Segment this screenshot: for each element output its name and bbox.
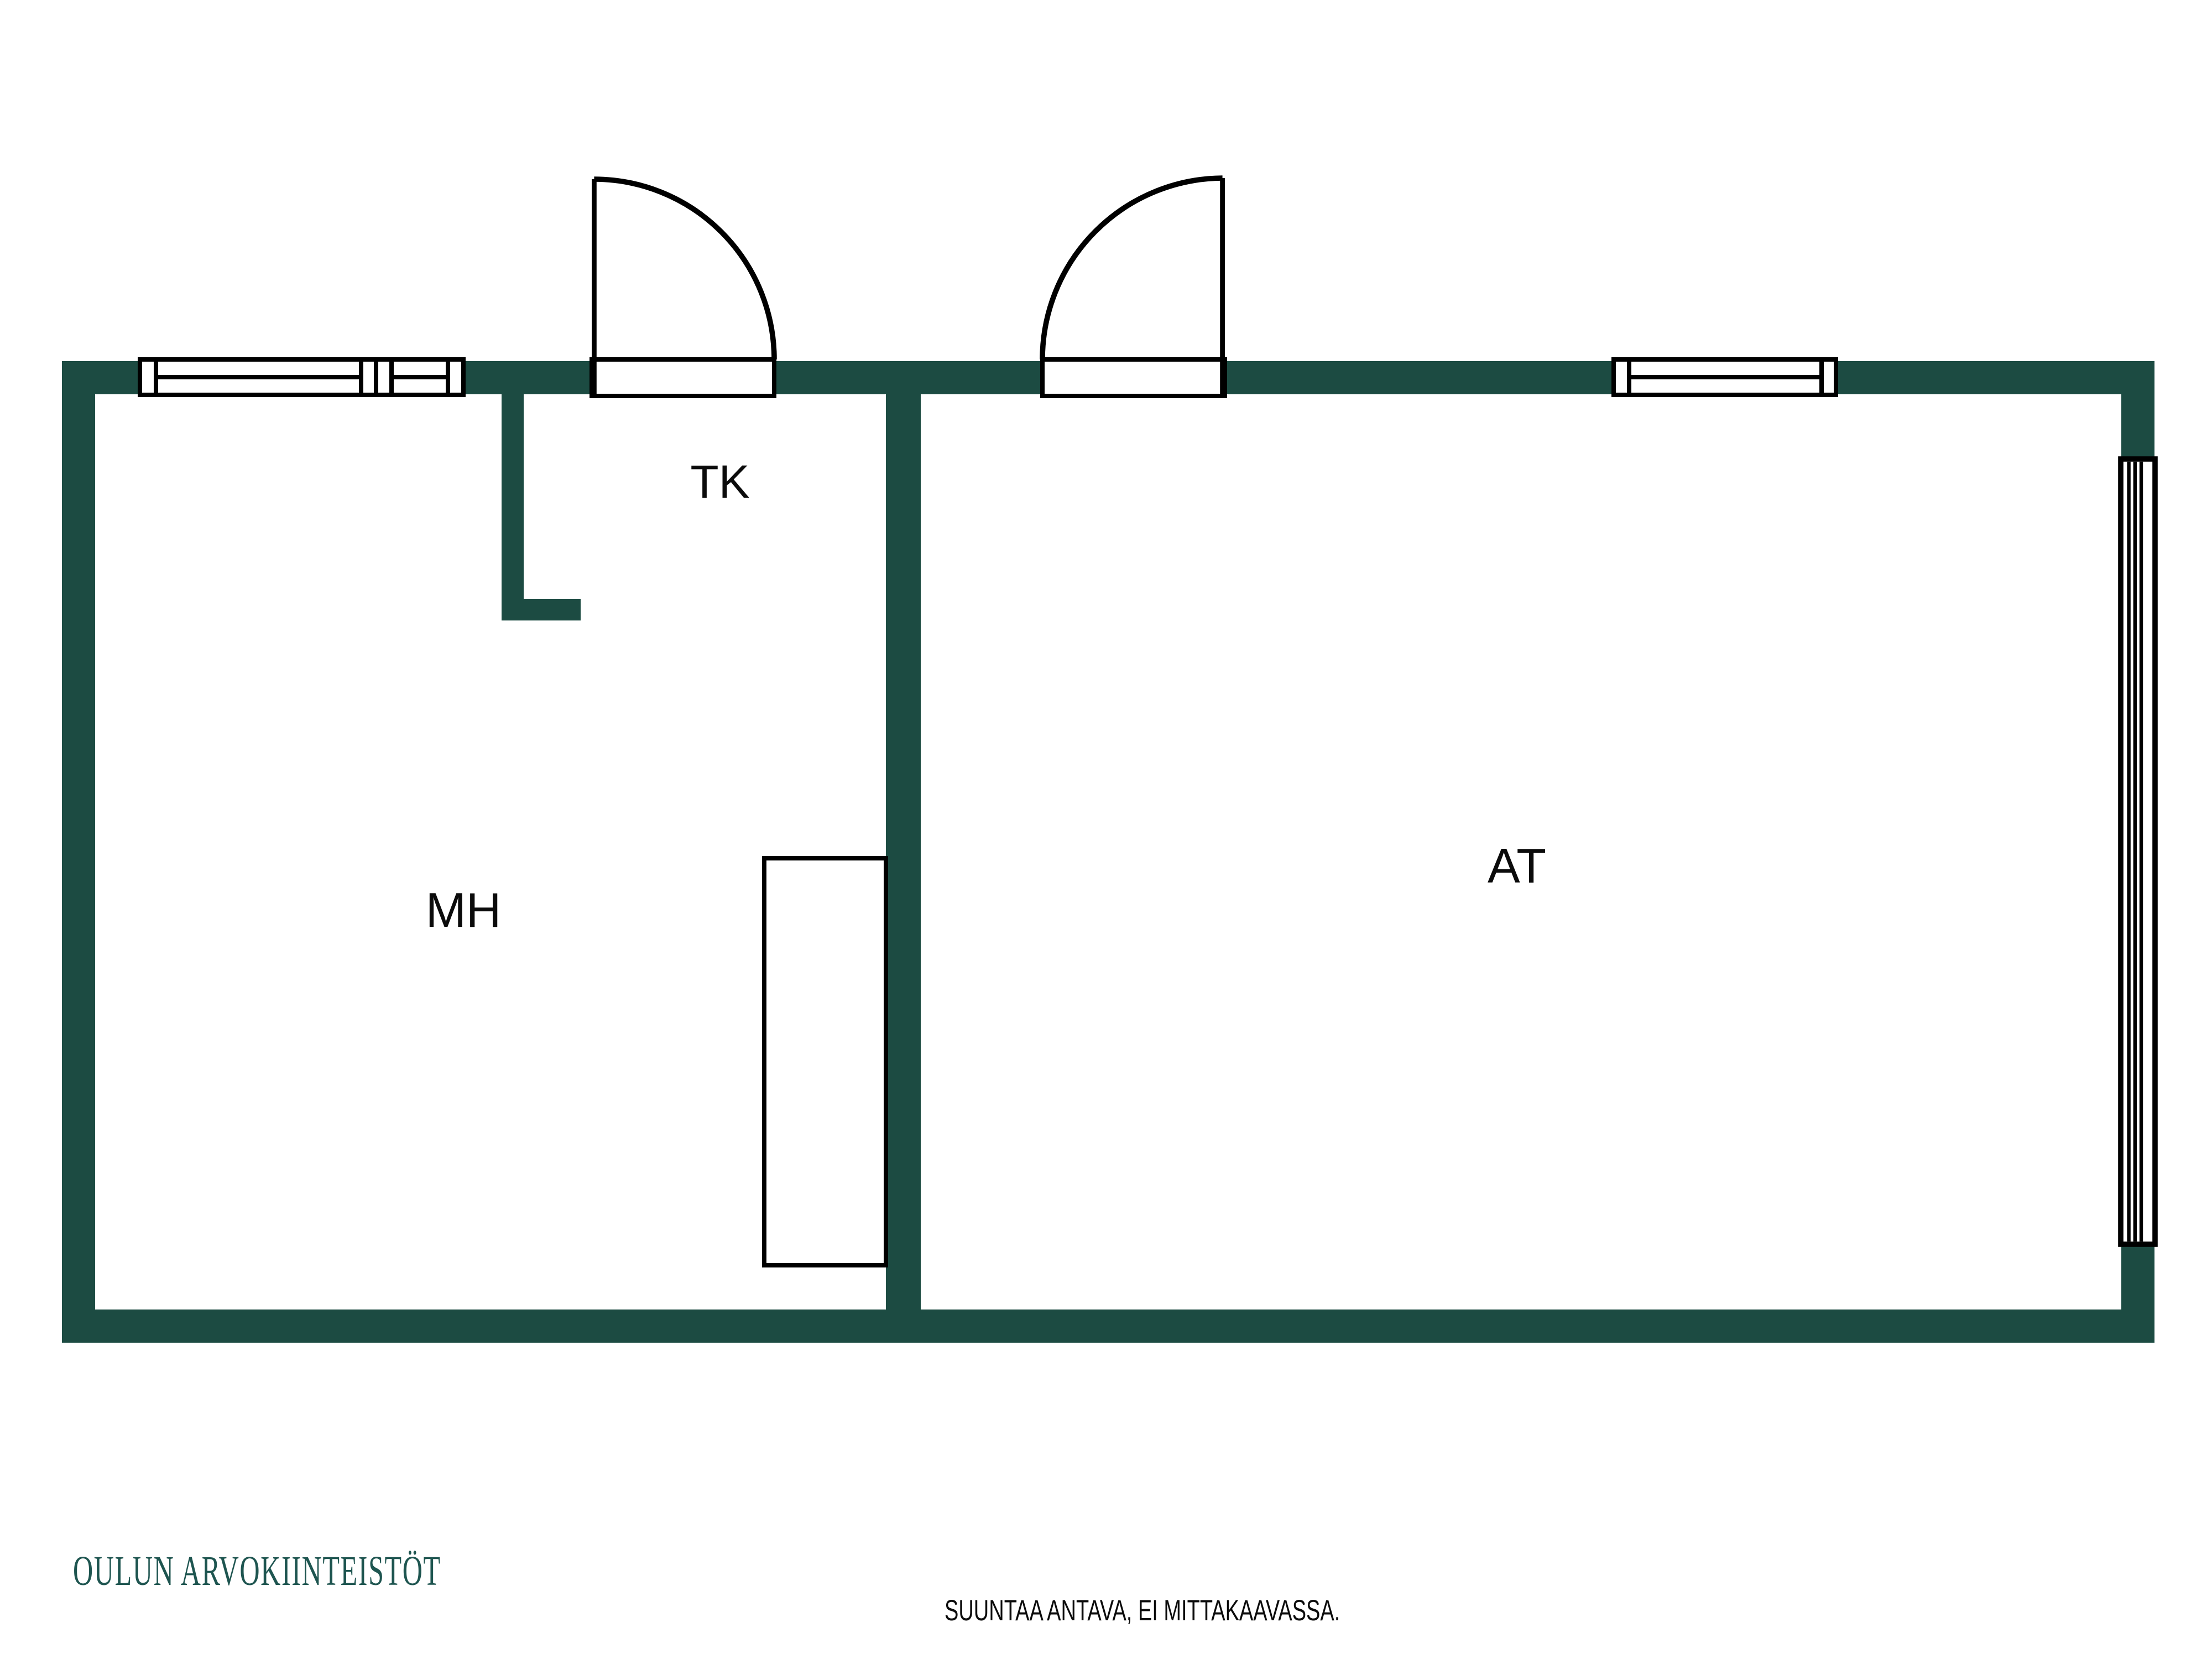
window-frame [2121, 459, 2155, 1244]
room-label-mh: MH [426, 883, 502, 937]
wall-bottom [62, 1310, 2154, 1343]
door-left [592, 179, 774, 396]
wall-divider-vertical [886, 394, 921, 1310]
door-opening [592, 359, 774, 396]
wall-tk-nook-vertical [502, 394, 524, 620]
window-top-left-large [140, 359, 376, 395]
door-swing-arc [1042, 178, 1223, 359]
closet-fixture [764, 858, 886, 1265]
window-right-wall [2121, 459, 2155, 1244]
floor-plan-page: TK MH AT OULUN ARVOKIINTEISTÖT SUUNTAA A… [0, 0, 2212, 1659]
window-top-right [1614, 359, 1836, 395]
floor-plan-drawing: TK MH AT OULUN ARVOKIINTEISTÖT SUUNTAA A… [0, 0, 2212, 1659]
room-label-at: AT [1488, 838, 1546, 893]
door-opening [1042, 359, 1225, 396]
window-top-left-small [376, 359, 463, 395]
door-right [1042, 178, 1225, 396]
walls [62, 361, 2154, 1343]
wall-tk-nook-stub [502, 599, 581, 620]
disclaimer-text: SUUNTAA ANTAVA, EI MITTAKAAVASSA. [945, 1594, 1340, 1627]
room-label-tk: TK [690, 456, 749, 508]
door-swing-arc [594, 179, 774, 359]
wall-left [62, 361, 95, 1343]
company-logo-text: OULUN ARVOKIINTEISTÖT [73, 1548, 441, 1594]
